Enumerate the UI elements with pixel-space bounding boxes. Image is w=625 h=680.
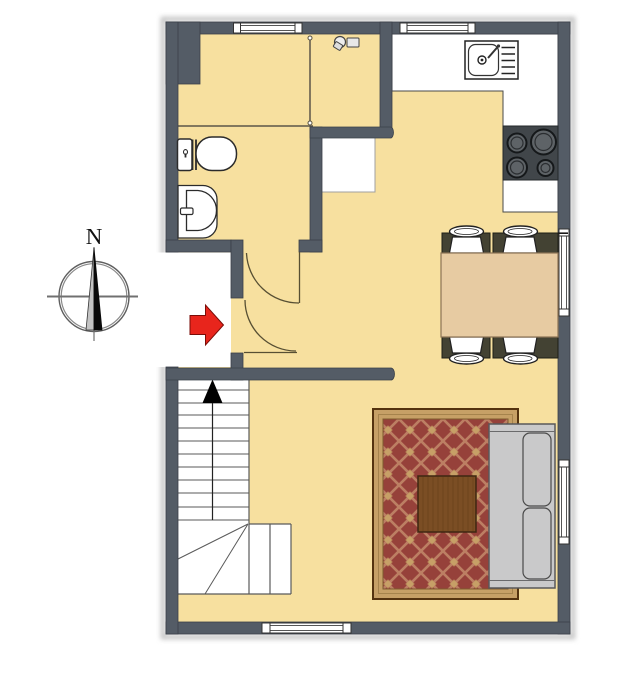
svg-text:N: N xyxy=(86,224,103,249)
